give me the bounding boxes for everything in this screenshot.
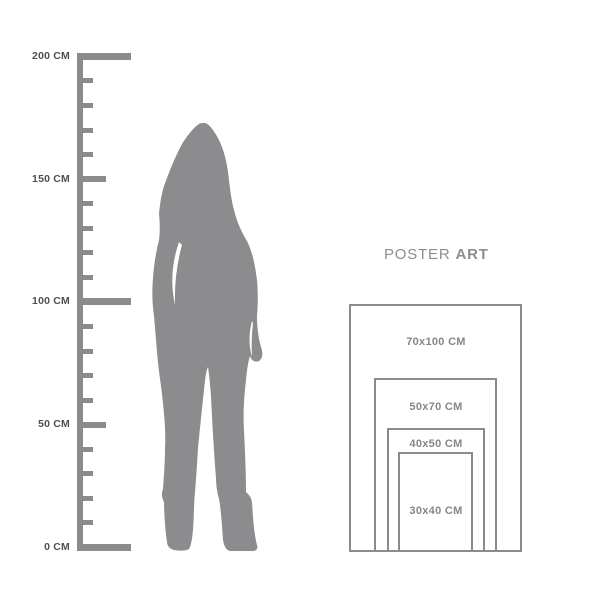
poster-size-label-30x40: 30x40 CM — [376, 504, 496, 518]
poster-art-title-regular: POSTER — [384, 246, 450, 263]
poster-art-title: POSTER ART — [384, 246, 489, 263]
poster-size-guide: 200 CM 150 CM 100 CM 50 CM 0 CM POSTER A… — [0, 0, 600, 600]
poster-size-label-50x70: 50x70 CM — [376, 400, 496, 414]
poster-size-30x40 — [398, 452, 473, 552]
poster-size-label-40x50: 40x50 CM — [376, 437, 496, 451]
poster-size-label-70x100: 70x100 CM — [376, 335, 496, 349]
poster-art-title-bold: ART — [455, 246, 488, 263]
